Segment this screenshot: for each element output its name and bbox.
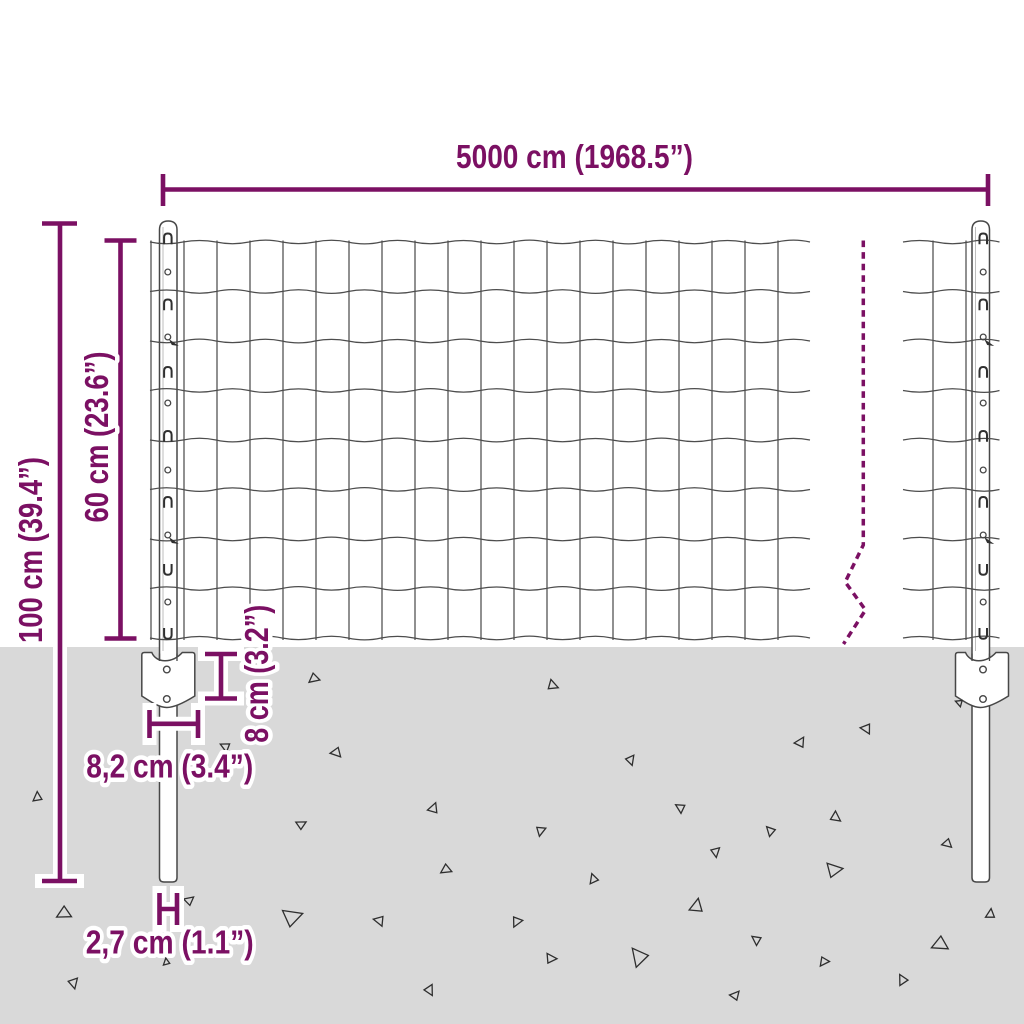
svg-text:2,7 cm (1.1”): 2,7 cm (1.1”) (86, 925, 254, 962)
svg-text:8 cm (3.2”): 8 cm (3.2”) (239, 605, 276, 743)
svg-text:5000 cm (1968.5”): 5000 cm (1968.5”) (456, 139, 693, 176)
svg-text:60 cm (23.6”): 60 cm (23.6”) (79, 352, 116, 523)
svg-text:8,2 cm (3.4”): 8,2 cm (3.4”) (86, 749, 253, 786)
svg-text:100 cm (39.4”): 100 cm (39.4”) (13, 457, 50, 643)
